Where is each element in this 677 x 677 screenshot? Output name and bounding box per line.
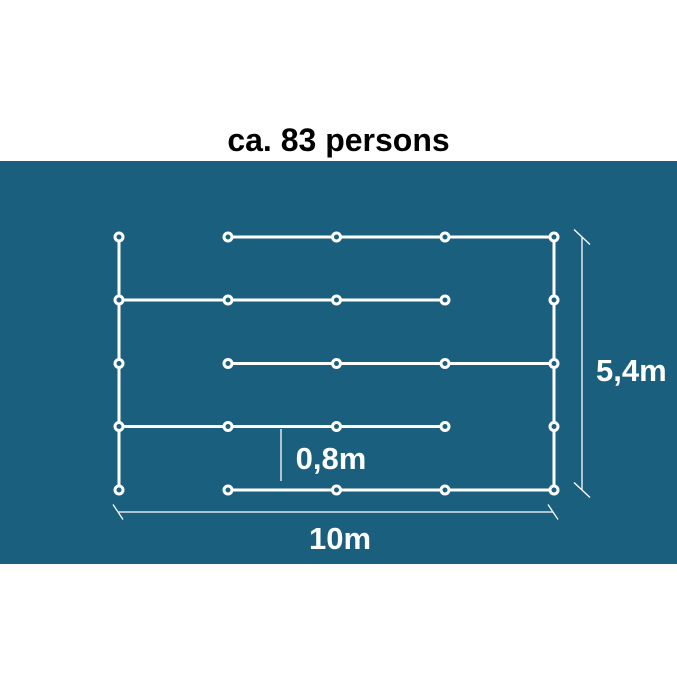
queue-post-node (550, 486, 558, 494)
queue-post-node (224, 423, 232, 431)
queue-post-node (550, 360, 558, 368)
queue-post-node (333, 296, 341, 304)
dimension-label-row-gap: 0,8m (296, 441, 367, 477)
queue-post-node (115, 360, 123, 368)
queue-layout-diagram (0, 0, 677, 677)
queue-post-node (441, 360, 449, 368)
queue-post-node (115, 423, 123, 431)
queue-post-node (333, 486, 341, 494)
queue-post-node (441, 296, 449, 304)
queue-post-node (550, 423, 558, 431)
queue-post-node (224, 233, 232, 241)
dimension-label-height: 5,4m (596, 353, 667, 389)
queue-post-node (550, 233, 558, 241)
queue-post-node (441, 233, 449, 241)
dimension-label-width: 10m (309, 521, 371, 557)
queue-post-node (115, 296, 123, 304)
queue-post-node (224, 296, 232, 304)
queue-post-node (441, 486, 449, 494)
queue-post-node (224, 360, 232, 368)
queue-post-node (333, 360, 341, 368)
queue-post-node (441, 423, 449, 431)
queue-post-node (333, 233, 341, 241)
queue-post-node (333, 423, 341, 431)
queue-post-node (224, 486, 232, 494)
queue-post-node (115, 233, 123, 241)
queue-post-node (550, 296, 558, 304)
queue-post-node (115, 486, 123, 494)
